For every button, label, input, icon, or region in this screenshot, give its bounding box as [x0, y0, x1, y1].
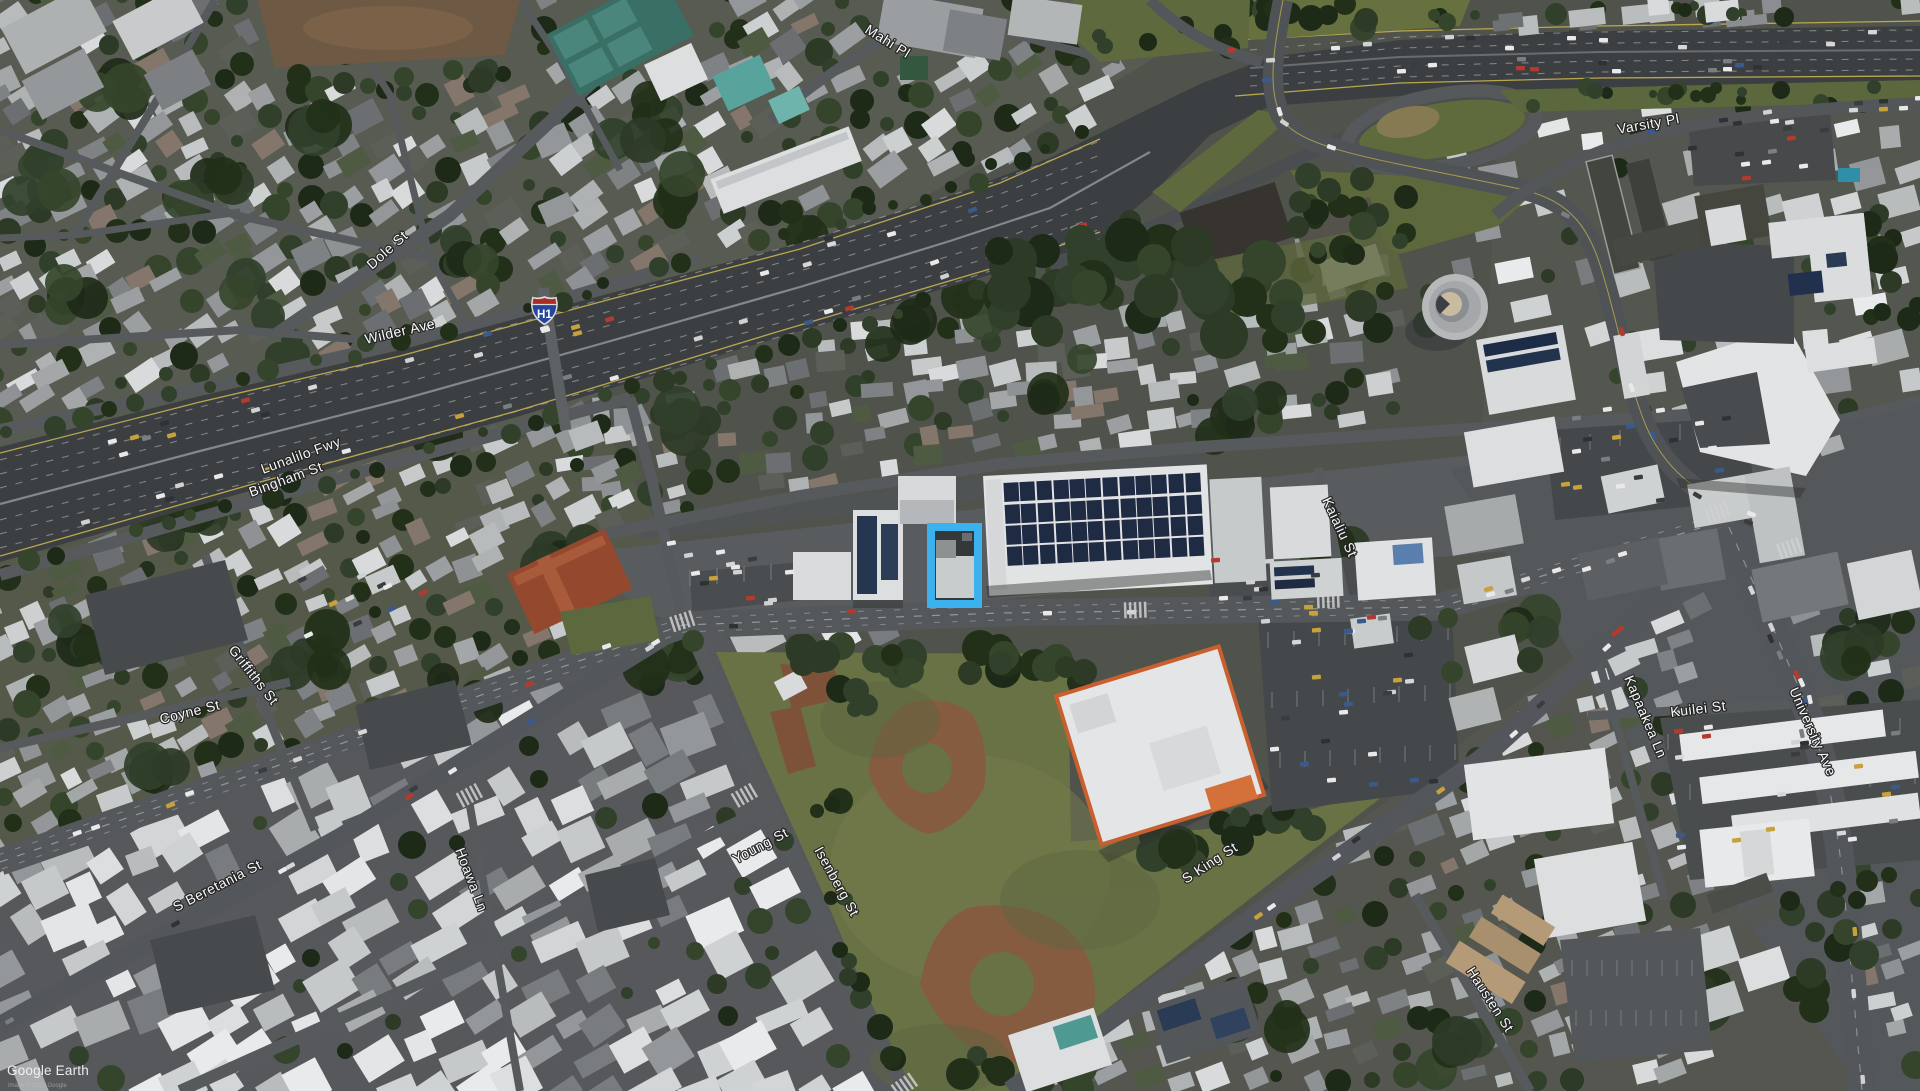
svg-text:H1: H1	[537, 309, 552, 321]
svg-text:Image © 2025 Google: Image © 2025 Google	[8, 1082, 67, 1089]
svg-text:Google Earth: Google Earth	[7, 1063, 89, 1078]
